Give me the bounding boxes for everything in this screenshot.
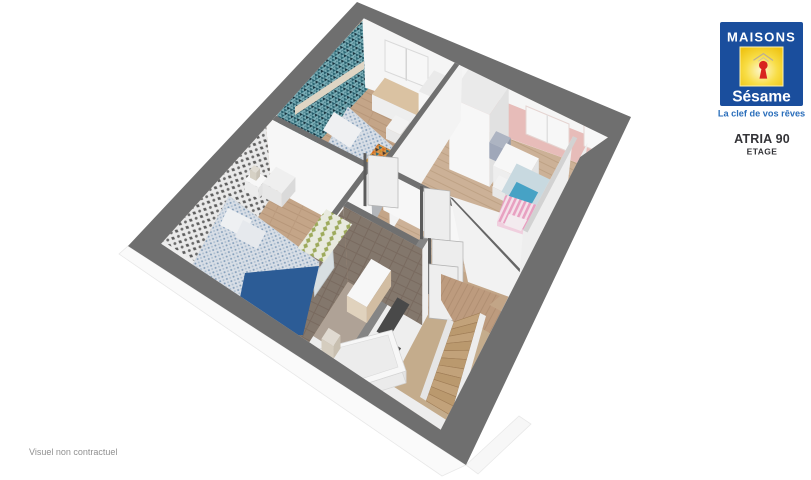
svg-text:Sésame: Sésame <box>732 89 791 106</box>
svg-text:Visuel non contractuel: Visuel non contractuel <box>29 447 117 457</box>
svg-text:ATRIA 90: ATRIA 90 <box>734 132 790 146</box>
svg-text:ETAGE: ETAGE <box>747 147 778 157</box>
svg-text:MAISONS: MAISONS <box>727 30 796 45</box>
svg-text:La clef de vos rêves: La clef de vos rêves <box>718 109 805 119</box>
